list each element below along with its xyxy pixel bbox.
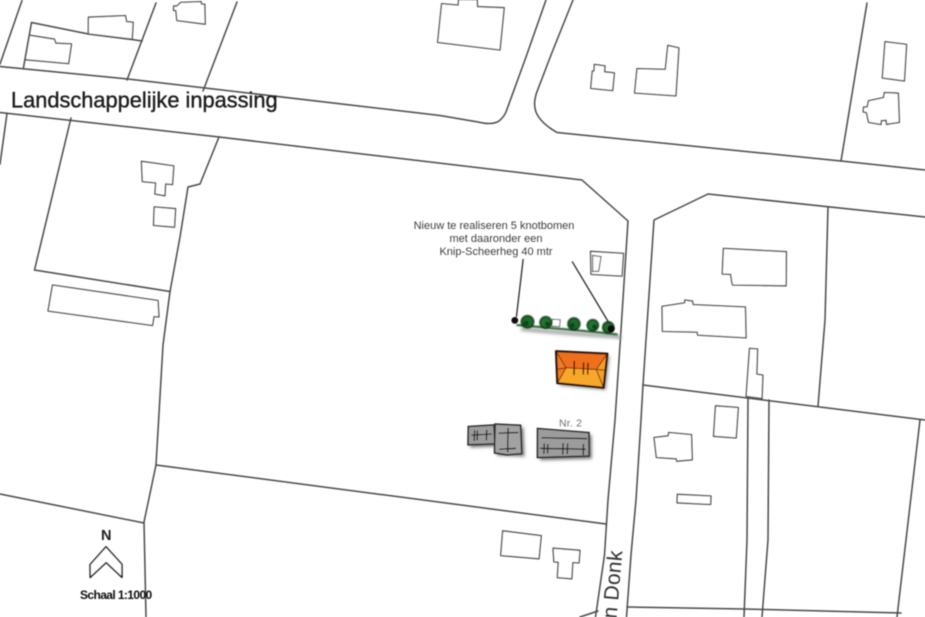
svg-text:Knip-Scheerheg 40 mtr: Knip-Scheerheg 40 mtr [439, 246, 552, 258]
svg-text:Landschappelijke inpassing: Landschappelijke inpassing [11, 88, 278, 113]
svg-text:Schaal 1:1000: Schaal 1:1000 [80, 588, 153, 602]
svg-text:N: N [101, 528, 111, 544]
svg-text:Nieuw te realiseren 5 knotbome: Nieuw te realiseren 5 knotbomen [414, 220, 575, 232]
svg-text:met daaronder een: met daaronder een [450, 233, 543, 245]
svg-text:Nr. 2: Nr. 2 [559, 418, 582, 430]
